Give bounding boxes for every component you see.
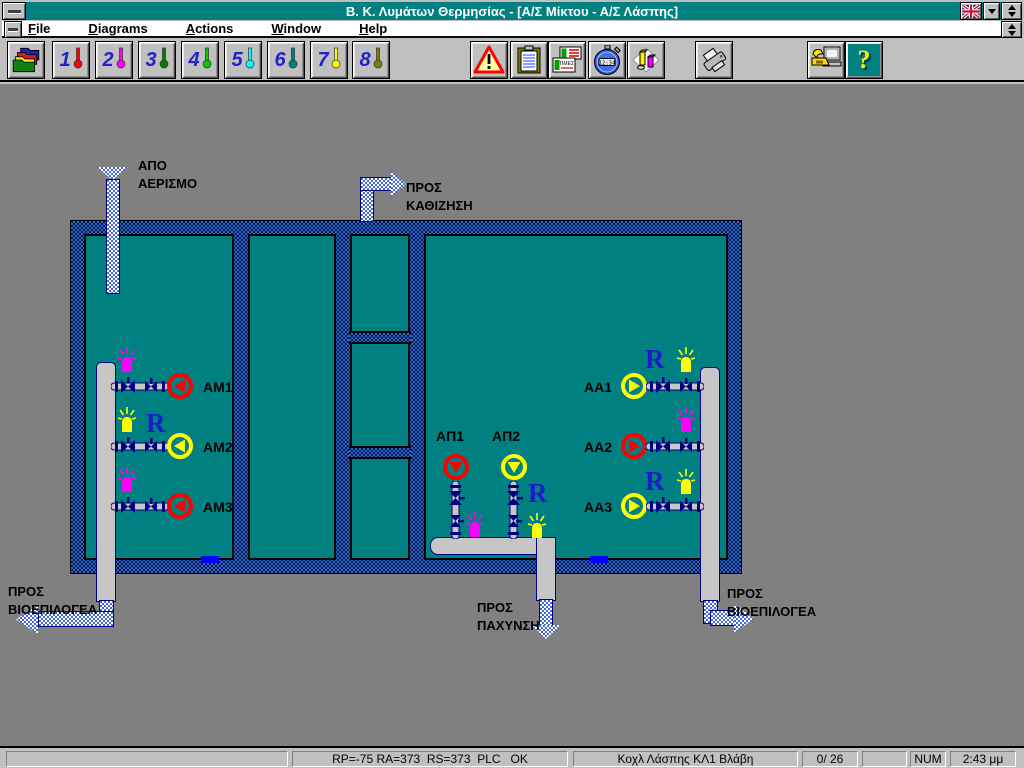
diagram-3-number: 3 <box>145 49 156 72</box>
thermometer-icon <box>373 47 383 74</box>
pump-label-AA3: AA3 <box>584 499 612 515</box>
child-restore-up-icon <box>1008 24 1016 29</box>
values-table-icon: ΤΙΜΕΣ <box>551 45 583 75</box>
diagram-5-number: 5 <box>231 49 242 72</box>
diagram-4-button[interactable]: 4 <box>181 41 219 79</box>
sedimentation-flow-arrow <box>391 171 406 197</box>
pump-label-AM3: AM3 <box>203 499 233 515</box>
label-to-sedimentation: ΠΡΟΣ ΚΑΘΙΖΗΣΗ <box>406 179 473 215</box>
minimize-button[interactable] <box>983 2 1000 20</box>
diagram-5-button[interactable]: 5 <box>224 41 262 79</box>
pump-AM3[interactable] <box>166 492 194 520</box>
diagram-1-button[interactable]: 1 <box>52 41 90 79</box>
pump-label-AM2: AM2 <box>203 439 233 455</box>
compartment-divider-bar <box>349 331 411 344</box>
level-indicator-left <box>201 550 219 557</box>
diagram-2-button[interactable]: 2 <box>95 41 133 79</box>
thermometer-icon <box>331 47 341 74</box>
diagrams-folder-button[interactable] <box>7 41 45 79</box>
child-system-menu-icon <box>8 28 18 31</box>
reset-flag-AA1: R <box>645 348 665 370</box>
svg-text:ΤΙΜΕΣ: ΤΙΜΕΣ <box>559 61 574 67</box>
diagram-4-number: 4 <box>188 49 199 72</box>
values-tables-button[interactable]: ΤΙΜΕΣ <box>548 41 586 79</box>
pump-AA3[interactable] <box>620 492 648 520</box>
thermometer-icon <box>116 47 126 74</box>
restore-down-icon <box>1008 12 1016 17</box>
phone-modem-icon <box>810 45 842 75</box>
inlet-pipe-from-aeration <box>106 179 120 294</box>
label-from-aeration: ΑΠΟ ΑΕΡΙΣΜΟ <box>138 157 197 193</box>
menu-file[interactable]: File <box>28 21 64 36</box>
pipe-valve-assembly <box>646 495 704 517</box>
folders-icon <box>10 46 42 74</box>
pump-label-AP2: ΑΠ2 <box>492 428 520 444</box>
diagram-8-button[interactable]: 8 <box>352 41 390 79</box>
application-window: Β. Κ. Λυμάτων Θερμησίας - [Α/Σ Μίκτου - … <box>0 0 1024 768</box>
reset-flag-AP2: R <box>528 482 548 504</box>
thermometer-icon <box>288 47 298 74</box>
thermometer-icon <box>159 47 169 74</box>
thickening-pipe-v <box>536 537 556 601</box>
pipe-valve-assembly <box>646 375 704 397</box>
communications-button[interactable] <box>807 41 845 79</box>
menu-diagrams[interactable]: Diagrams <box>88 21 161 36</box>
pump-label-AA2: AA2 <box>584 439 612 455</box>
diagram-8-number: 8 <box>359 49 370 72</box>
system-menu-icon <box>8 10 21 13</box>
pump-AM2[interactable] <box>166 432 194 460</box>
alarm-beacon-AP2 <box>528 512 546 538</box>
status-panel-empty <box>6 751 288 767</box>
chart-3d-icon <box>631 45 661 75</box>
child-restore-down-icon <box>1008 31 1016 36</box>
label-to-bioselector-right: ΠΡΟΣ ΒΙΟΕΠΙΛΟΓΕΑ <box>727 585 816 621</box>
diagram-7-button[interactable]: 7 <box>310 41 348 79</box>
menu-bar: File Diagrams Actions Window Help <box>2 21 1022 38</box>
system-menu-button[interactable] <box>2 2 26 20</box>
pump-AA2[interactable] <box>620 432 648 460</box>
child-system-menu-button[interactable] <box>4 21 22 38</box>
right-collector-pipe <box>700 367 720 602</box>
pipe-valve-assembly <box>111 375 169 397</box>
level-indicator-right <box>590 550 608 557</box>
alarm-beacon-AM1 <box>118 346 136 372</box>
minimize-icon <box>988 9 996 14</box>
printer-icon <box>698 45 730 75</box>
event-log-button[interactable] <box>510 41 548 79</box>
statistics-button[interactable] <box>627 41 665 79</box>
status-bar: RP=-75 RA=373 RS=373 PLC OK Κοχλ Λάσπης … <box>0 746 1024 768</box>
pump-label-AM1: AM1 <box>203 379 233 395</box>
menu-actions[interactable]: Actions <box>186 21 248 36</box>
alarm-beacon-AA1 <box>677 346 695 372</box>
pipe-valve-assembly <box>445 481 467 539</box>
alarm-beacon-AA2 <box>677 406 695 432</box>
warning-triangle-icon <box>473 45 505 75</box>
diagram-3-button[interactable]: 3 <box>138 41 176 79</box>
compartment-divider-bar <box>349 446 411 459</box>
help-button[interactable]: ? <box>845 41 883 79</box>
thermometer-icon <box>245 47 255 74</box>
help-icon: ? <box>858 45 871 75</box>
clipboard-icon <box>515 45 543 75</box>
label-to-bioselector-left: ΠΡΟΣ ΒΙΟΕΠΙΛΟΓΕΑ <box>8 583 97 619</box>
scada-diagram-canvas: ΑΠΟ ΑΕΡΙΣΜΟ ΠΡΟΣ ΚΑΘΙΖΗΣΗ ΠΡΟΣ ΒΙΟΕΠΙΛΟΓ… <box>0 84 1024 746</box>
language-flag-button[interactable] <box>960 2 982 20</box>
pump-label-AP1: ΑΠ1 <box>436 428 464 444</box>
window-title: Β. Κ. Λυμάτων Θερμησίας - [Α/Σ Μίκτου - … <box>2 4 1022 19</box>
tank-compartment-3 <box>350 234 410 560</box>
restore-button[interactable] <box>1001 2 1022 20</box>
pump-label-AA1: AA1 <box>584 379 612 395</box>
stopwatch-icon: 12:34 <box>592 45 622 75</box>
pump-AP2[interactable] <box>500 453 528 481</box>
reset-flag-AM2: R <box>146 412 166 434</box>
timers-button[interactable]: 12:34 <box>588 41 626 79</box>
thermometer-icon <box>73 47 83 74</box>
status-panel-blank <box>862 751 907 767</box>
menu-help[interactable]: Help <box>359 21 401 36</box>
pipe-valve-assembly <box>503 481 525 539</box>
menu-window[interactable]: Window <box>271 21 335 36</box>
alarm-beacon-AP1 <box>466 511 484 537</box>
uk-flag-icon <box>962 5 980 18</box>
pipe-valve-assembly <box>111 435 169 457</box>
clock-panel: 2:43 μμ <box>950 751 1016 767</box>
tank-compartment-2 <box>248 234 336 560</box>
pump-AP1[interactable] <box>442 453 470 481</box>
diagram-7-number: 7 <box>317 49 328 72</box>
alarms-button[interactable] <box>470 41 508 79</box>
pump-AM1[interactable] <box>166 372 194 400</box>
alarm-message-panel: Κοχλ Λάσπης ΚΛ1 Βλάβη <box>573 751 798 767</box>
diagram-6-number: 6 <box>274 49 285 72</box>
toolbar: 1 2 3 4 5 6 7 8 <box>0 40 1024 82</box>
left-collector-pipe <box>96 362 116 602</box>
pipe-valve-assembly <box>646 435 704 457</box>
outlet-pipe-to-sedimentation-h <box>360 177 393 191</box>
diagram-2-number: 2 <box>102 49 113 72</box>
pump-AA1[interactable] <box>620 372 648 400</box>
plc-status-panel: RP=-75 RA=373 RS=373 PLC OK <box>292 751 568 767</box>
diagram-6-button[interactable]: 6 <box>267 41 305 79</box>
alarm-beacon-AM3 <box>118 466 136 492</box>
print-button[interactable] <box>695 41 733 79</box>
num-lock-indicator: NUM <box>910 751 946 767</box>
alarm-beacon-AM2 <box>118 406 136 432</box>
alarm-counter-panel: 0/ 26 <box>802 751 858 767</box>
title-bar: Β. Κ. Λυμάτων Θερμησίας - [Α/Σ Μίκτου - … <box>2 2 1022 20</box>
label-to-thickening: ΠΡΟΣ ΠΑΧΥΝΣΗ <box>477 599 540 635</box>
menu-items: File Diagrams Actions Window Help <box>28 21 425 36</box>
thermometer-icon <box>202 47 212 74</box>
diagram-1-number: 1 <box>59 49 70 72</box>
pipe-valve-assembly <box>111 495 169 517</box>
thickening-outlet-pipe <box>539 599 553 626</box>
svg-text:12:34: 12:34 <box>599 60 616 66</box>
alarm-beacon-AA3 <box>677 468 695 494</box>
reset-flag-AA3: R <box>645 470 665 492</box>
restore-up-icon <box>1008 5 1016 10</box>
child-restore-button[interactable] <box>1001 21 1022 38</box>
